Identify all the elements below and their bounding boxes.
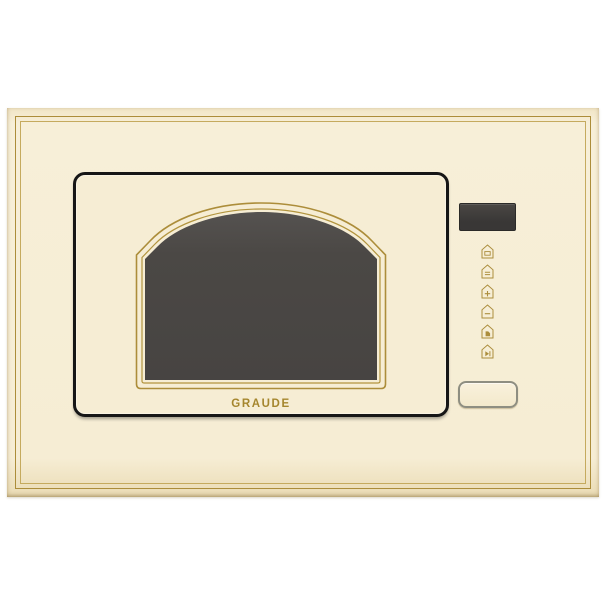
led-display (459, 203, 516, 231)
grill-button[interactable] (481, 264, 494, 279)
minus-icon (481, 304, 494, 319)
timer-button[interactable] (481, 324, 494, 339)
door-window (135, 201, 387, 391)
window-glass (145, 212, 377, 380)
brand-logo: GRAUDE (76, 398, 446, 410)
microwave-power-button[interactable] (481, 244, 494, 259)
plus-icon (481, 284, 494, 299)
microwave-icon (481, 244, 494, 259)
microwave-oven-body: GRAUDE (7, 108, 599, 497)
control-button-column (480, 244, 495, 364)
grill-icon (481, 264, 494, 279)
increase-button[interactable] (481, 284, 494, 299)
play-icon (481, 344, 494, 359)
start-button[interactable] (481, 344, 494, 359)
oven-door[interactable]: GRAUDE (73, 172, 449, 417)
door-open-button[interactable] (458, 381, 518, 408)
decrease-button[interactable] (481, 304, 494, 319)
clock-icon (481, 324, 494, 339)
